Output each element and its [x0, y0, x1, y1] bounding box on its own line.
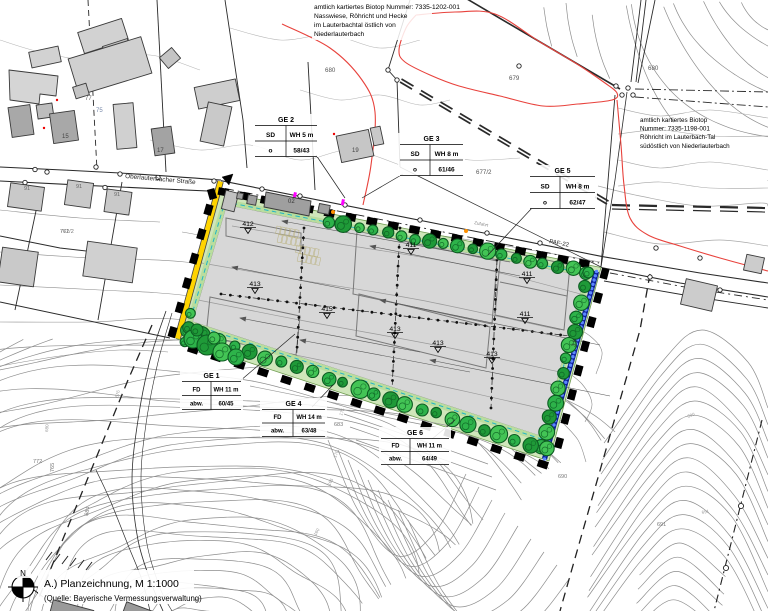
- svg-text:683: 683: [334, 422, 343, 428]
- svg-text:413: 413: [432, 340, 444, 347]
- svg-text:77: 77: [85, 96, 92, 102]
- svg-text:411: 411: [406, 242, 417, 249]
- svg-text:FD: FD: [274, 415, 283, 421]
- svg-text:A.) Planzeichnung, M 1:1000: A.) Planzeichnung, M 1:1000: [44, 578, 179, 590]
- svg-text:680: 680: [325, 67, 336, 74]
- svg-text:o: o: [543, 200, 547, 207]
- svg-text:amtlich kartiertes Biotop Numm: amtlich kartiertes Biotop Nummer: 7335-1…: [314, 4, 460, 11]
- svg-text:GE 3: GE 3: [424, 136, 440, 143]
- svg-text:(Quelle: Bayerische Vermessung: (Quelle: Bayerische Vermessungsverwaltun…: [44, 594, 202, 603]
- svg-text:15: 15: [62, 134, 69, 140]
- svg-text:91: 91: [76, 184, 82, 190]
- svg-text:91: 91: [114, 192, 120, 198]
- svg-text:677/2: 677/2: [476, 169, 492, 176]
- svg-text:SD: SD: [410, 151, 419, 158]
- svg-text:412: 412: [242, 221, 254, 228]
- svg-text:o: o: [269, 148, 273, 155]
- svg-text:761: 761: [60, 229, 69, 235]
- svg-text:58/43: 58/43: [293, 148, 310, 155]
- svg-text:SD: SD: [266, 132, 275, 139]
- svg-text:GE 5: GE 5: [555, 168, 571, 175]
- svg-text:FD: FD: [392, 444, 401, 450]
- svg-text:415: 415: [321, 306, 333, 313]
- svg-text:N: N: [20, 569, 26, 578]
- svg-text:19: 19: [352, 148, 359, 154]
- svg-text:413: 413: [486, 351, 498, 358]
- svg-text:02: 02: [288, 199, 295, 205]
- svg-text:abw.: abw.: [271, 429, 284, 435]
- svg-text:amtlich kartiertes Biotop: amtlich kartiertes Biotop: [640, 117, 708, 124]
- svg-text:WH 8 m: WH 8 m: [566, 184, 590, 191]
- svg-text:GE 4: GE 4: [286, 401, 302, 408]
- svg-text:680: 680: [648, 65, 659, 72]
- svg-text:765: 765: [50, 463, 56, 472]
- svg-text:GE 1: GE 1: [204, 373, 220, 380]
- svg-text:GE 6: GE 6: [407, 430, 423, 437]
- svg-text:im Lauterbachtal östlich von: im Lauterbachtal östlich von: [314, 22, 396, 29]
- svg-text:680: 680: [44, 424, 50, 432]
- svg-text:679: 679: [509, 75, 520, 82]
- svg-text:60/45: 60/45: [218, 402, 234, 408]
- svg-text:691: 691: [657, 522, 666, 528]
- svg-text:75: 75: [96, 108, 103, 114]
- svg-text:91: 91: [24, 186, 30, 192]
- svg-text:64/49: 64/49: [422, 457, 438, 463]
- svg-text:GE 2: GE 2: [278, 117, 294, 124]
- svg-text:südöstlich von Niederlauterbac: südöstlich von Niederlauterbach: [640, 143, 730, 150]
- svg-text:WH 8 m: WH 8 m: [435, 151, 459, 158]
- svg-text:FD: FD: [193, 388, 202, 394]
- svg-text:411: 411: [522, 271, 533, 278]
- svg-text:o: o: [413, 167, 417, 174]
- svg-text:61/46: 61/46: [438, 167, 455, 174]
- svg-text:WH 14 m: WH 14 m: [296, 415, 321, 421]
- svg-text:WH 11 m: WH 11 m: [417, 444, 442, 450]
- svg-text:62/47: 62/47: [569, 200, 586, 207]
- svg-text:abw.: abw.: [190, 402, 203, 408]
- svg-text:Nasswiese, Röhricht und Hecke: Nasswiese, Röhricht und Hecke: [314, 13, 408, 20]
- svg-text:772: 772: [33, 459, 42, 465]
- svg-text:413: 413: [249, 281, 261, 288]
- svg-text:413: 413: [389, 326, 401, 333]
- svg-text:SD: SD: [540, 184, 549, 191]
- svg-text:Niederlauterbach: Niederlauterbach: [314, 31, 365, 38]
- svg-text:63/48: 63/48: [301, 429, 317, 435]
- svg-text:Nummer: 7335-1198-001: Nummer: 7335-1198-001: [640, 126, 710, 133]
- svg-text:17: 17: [157, 148, 164, 154]
- svg-text:abw.: abw.: [389, 457, 402, 463]
- svg-text:Röhricht im Lauterbach-Tal: Röhricht im Lauterbach-Tal: [640, 134, 715, 141]
- svg-text:WH 11 m: WH 11 m: [213, 388, 238, 394]
- svg-text:690: 690: [558, 474, 567, 480]
- svg-text:WH 5 m: WH 5 m: [290, 132, 314, 139]
- svg-text:411: 411: [520, 311, 531, 318]
